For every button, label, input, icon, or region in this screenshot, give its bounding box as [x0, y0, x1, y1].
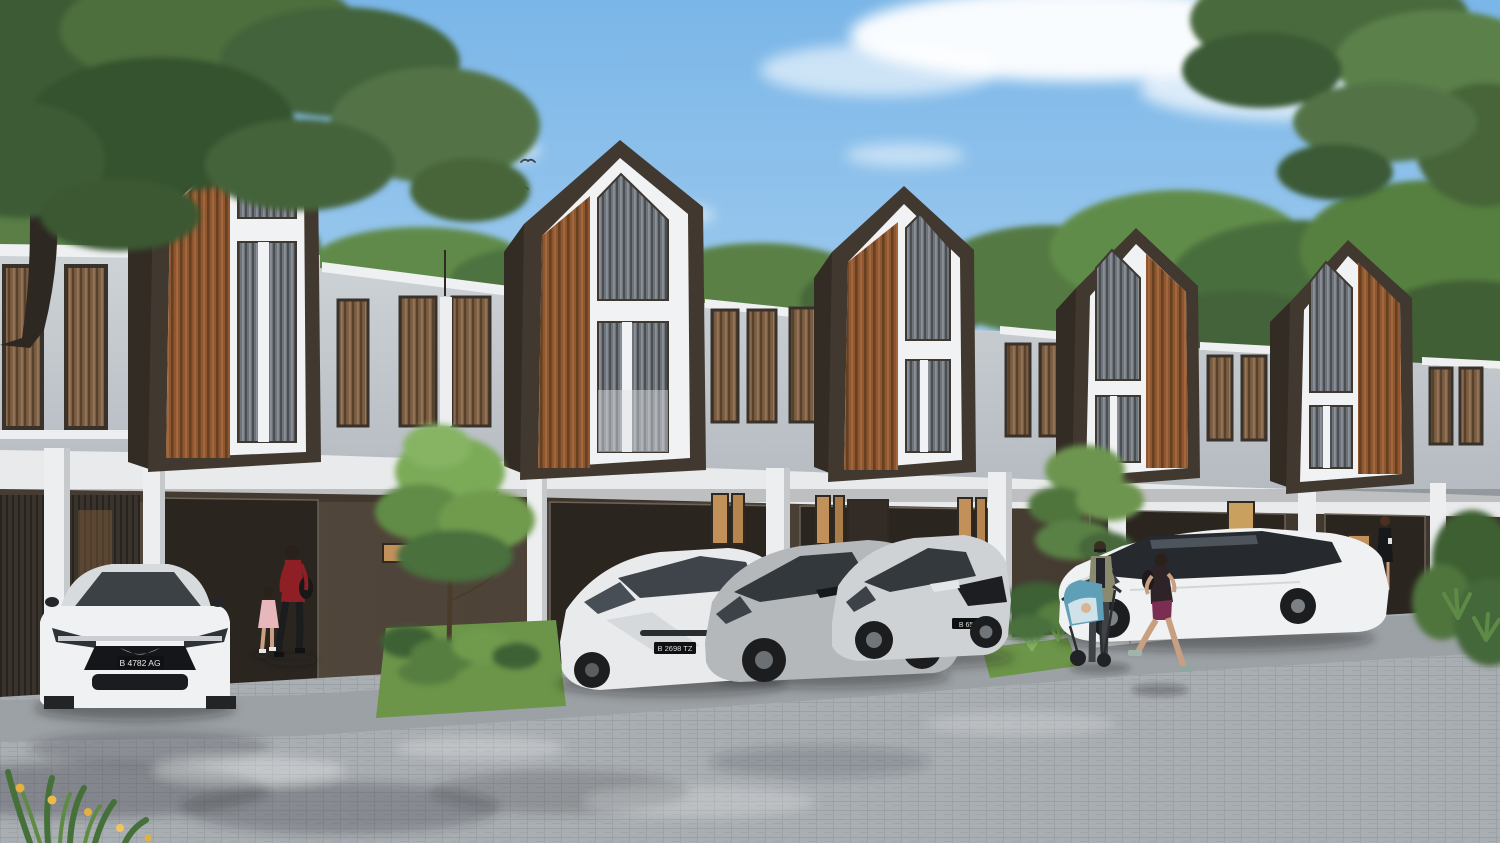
license-plate-text: B 2698 TZ — [658, 644, 693, 653]
flower — [16, 784, 25, 793]
window-pillar — [440, 297, 452, 426]
wood-cladding — [538, 196, 590, 468]
flower — [84, 808, 92, 816]
sunglasses — [1094, 549, 1106, 552]
baby — [1081, 603, 1091, 613]
flower — [145, 835, 152, 842]
flower — [116, 824, 124, 832]
license-plate-text: B 4782 AG — [119, 658, 160, 668]
scene-svg: B 4782 AG B 2698 TZ B 1 — [0, 0, 1500, 843]
wood-cladding — [844, 222, 898, 470]
architectural-render: B 4782 AG B 2698 TZ B 1 — [0, 0, 1500, 843]
flower — [48, 796, 57, 805]
balcony-glass — [598, 390, 668, 452]
